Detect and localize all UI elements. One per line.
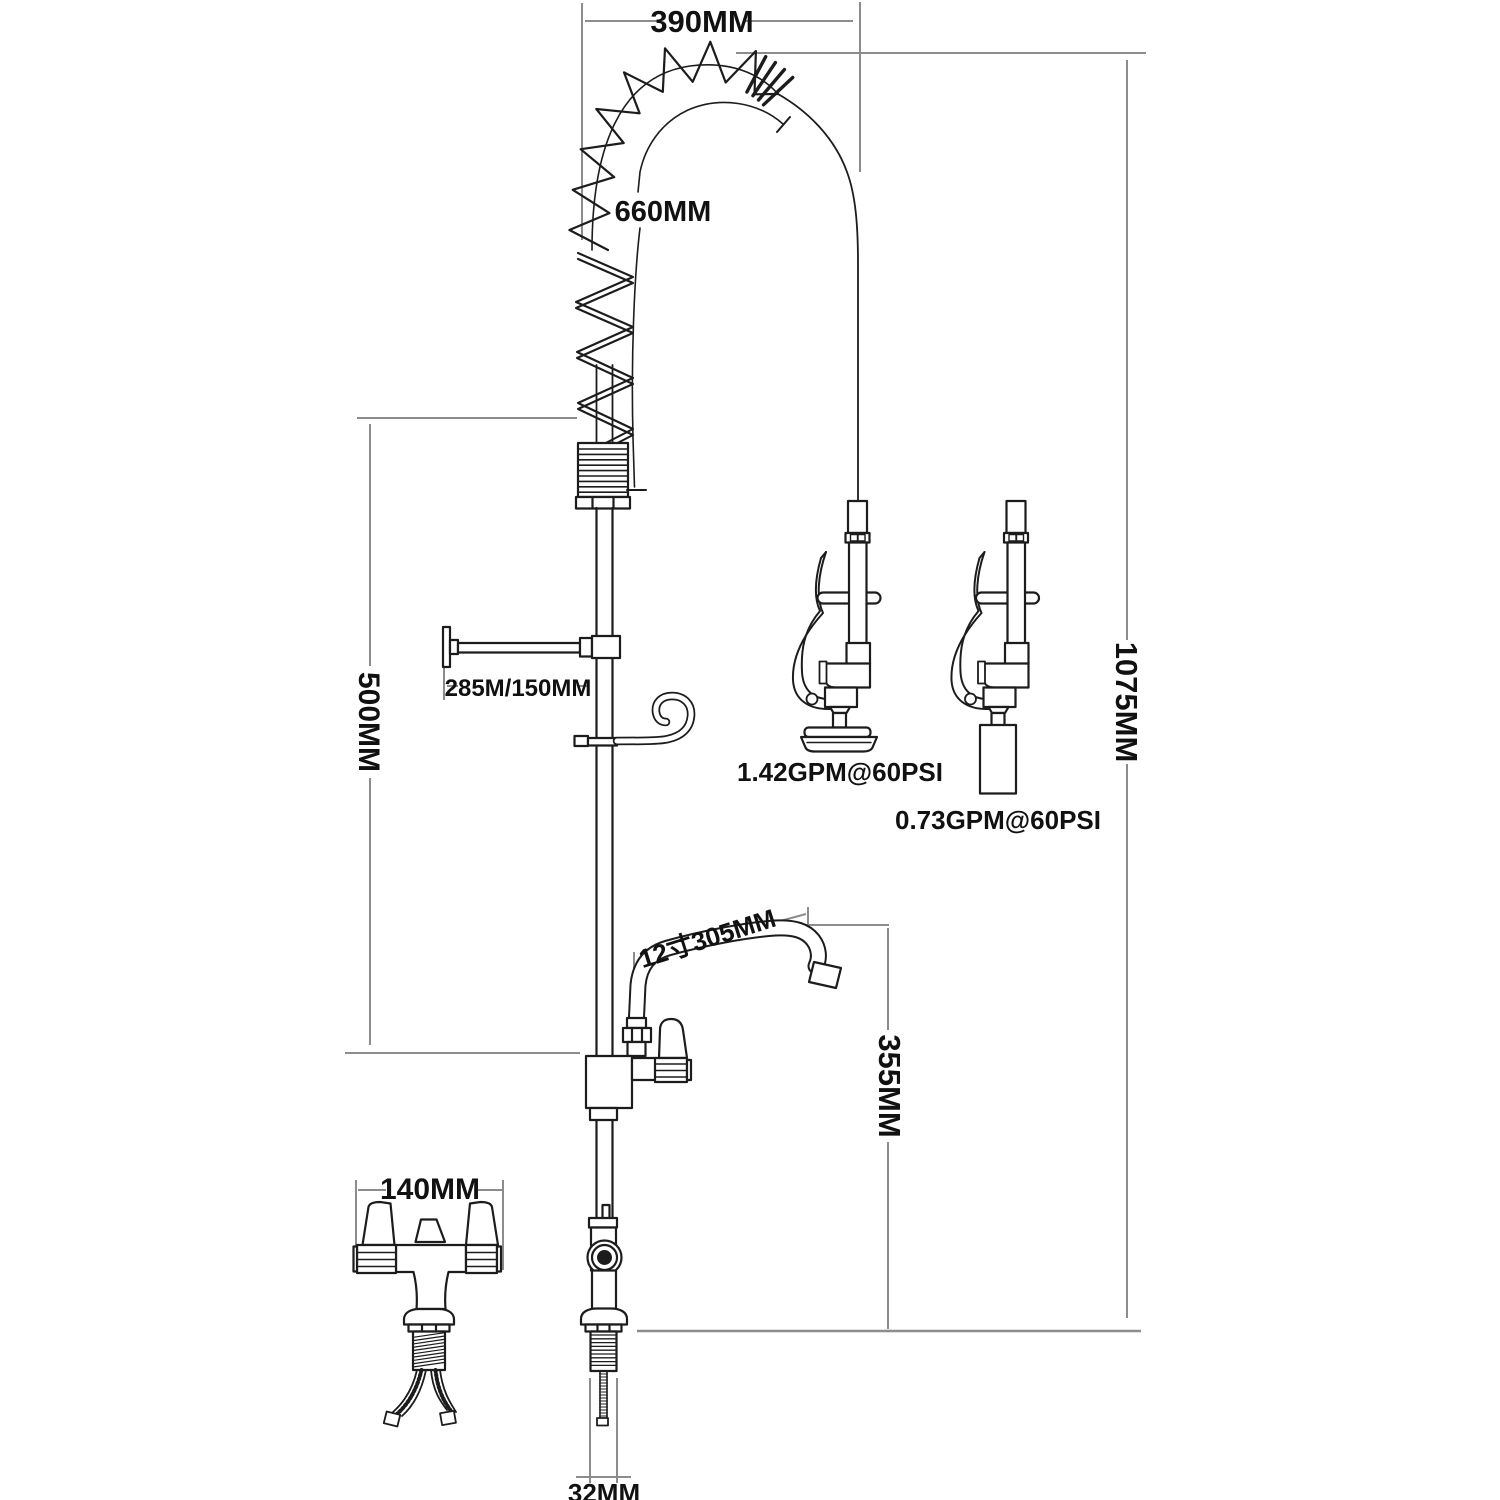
handle-top-tube (848, 501, 867, 533)
tee-body (586, 1056, 632, 1108)
mixer-nut-endcap-left (354, 1247, 358, 1272)
tee-handle-wing (659, 1019, 687, 1058)
spout-nut (623, 1028, 651, 1042)
leader-660-lower (632, 228, 640, 487)
wall-bracket-clamp-small (580, 638, 592, 657)
tee-arm (632, 1058, 656, 1080)
valve-pin (820, 662, 827, 684)
rod-end-cap (597, 1418, 608, 1426)
mixer-center-post (416, 1220, 446, 1243)
label-spout-length: 12寸305MM (635, 903, 779, 974)
label-1075mm: 1075MM (1109, 642, 1144, 763)
leader-660-upper (638, 102, 783, 192)
coil-spiral-strand (576, 253, 633, 447)
faucet-linework (354, 42, 1040, 1427)
tee-handle-cap (687, 1060, 691, 1080)
label-low-flow: 0.73GPM@60PSI (895, 805, 1101, 835)
trigger-pivot (807, 694, 818, 705)
spray-face-bell (801, 737, 877, 752)
spout-stub (628, 1042, 646, 1056)
spring-coil-descending (576, 253, 633, 453)
label-355mm: 355MM (872, 1034, 907, 1137)
spray-face-nozzle (801, 728, 877, 752)
valve-elbow (825, 664, 870, 688)
tee-waist (590, 1108, 617, 1120)
deck-flange (581, 1309, 627, 1325)
spray-face-disc (805, 728, 871, 738)
hook-bar-endcap (575, 736, 589, 746)
threaded-rod-threads (600, 1374, 608, 1416)
spout-nozzle-tip (809, 962, 841, 988)
mixer-wing-left (363, 1202, 395, 1245)
hook-bar (588, 738, 617, 746)
spray-head (793, 501, 881, 728)
spout-collar (627, 1018, 646, 1028)
valve-top-flange (589, 1218, 617, 1228)
handle-tube (849, 543, 867, 644)
hose-to-spray-head (778, 94, 858, 501)
label-660mm: 660MM (615, 196, 712, 228)
label-500mm: 500MM (352, 672, 385, 772)
label-390mm: 390MM (650, 4, 753, 39)
dimension-labels: 390MM 660MM 1075MM 500MM 355MM 285M/150M… (352, 4, 1144, 1500)
nozzle-stem (833, 713, 846, 728)
mixer-nut-endcap-right (497, 1247, 501, 1272)
low-flow-cylinder-nozzle (980, 725, 1016, 794)
hose-nut (576, 497, 630, 509)
wall-bracket-stub (450, 640, 458, 654)
mixer-wing-right (466, 1202, 498, 1245)
mixer-deck-flange (404, 1309, 454, 1325)
wall-bracket-clamp (592, 636, 620, 658)
valve-port (597, 1250, 612, 1265)
spring-coil-tight-end (747, 57, 793, 105)
label-bracket-reach: 285M/150MM (445, 675, 592, 702)
mixer-body (396, 1245, 466, 1309)
base-column (592, 1271, 616, 1311)
supply-hose-fitting-right (440, 1411, 456, 1425)
lower-block (825, 688, 857, 708)
wall-bracket-arm (458, 643, 580, 653)
leader-660-tick-top (777, 117, 790, 132)
label-140mm: 140MM (380, 1173, 480, 1206)
supply-hose-fitting-left (384, 1411, 400, 1426)
label-spray-flow: 1.42GPM@60PSI (737, 757, 943, 787)
dimension-drawing: 390MM 660MM 1075MM 500MM 355MM 285M/150M… (0, 0, 1500, 1500)
spray-head-low-flow (951, 501, 1039, 728)
label-32mm: 32MM (568, 1478, 640, 1500)
faucet-drawing-svg: 390MM 660MM 1075MM 500MM 355MM 285M/150M… (0, 0, 1500, 1500)
valve-block (847, 643, 871, 664)
